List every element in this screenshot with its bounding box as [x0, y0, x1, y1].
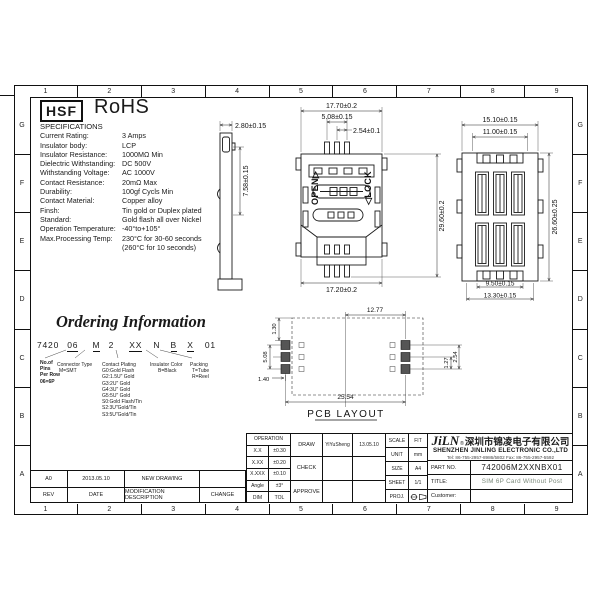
- side-view-dims: 2.80±0.15 7.58±0.15: [220, 121, 266, 215]
- dim-pin-pitch: 2.54±0.1: [353, 128, 380, 135]
- grid-col: 9: [525, 504, 588, 515]
- grid-row: F: [573, 155, 588, 213]
- customer-row: Customer:: [428, 490, 573, 503]
- grid-row: F: [15, 155, 30, 213]
- grid-col: 7: [397, 504, 461, 515]
- grid-col: 6: [333, 86, 397, 97]
- signoff-row-approve: APPROVE: [291, 481, 385, 503]
- ordering-leaders: [45, 350, 192, 358]
- grid-col: 1: [14, 86, 78, 97]
- tolerance-table: OPERATION X.X±0.30 X.XX±0.20 X.XXX±0.10 …: [246, 433, 290, 503]
- grid-row: A: [15, 446, 30, 503]
- dim-bottom-width: 17.20±0.2: [326, 287, 357, 294]
- rear-view: [457, 153, 543, 281]
- top-view: [296, 142, 387, 277]
- grid-col: 4: [206, 86, 270, 97]
- dim-side-height: 7.58±0.15: [243, 165, 250, 196]
- grid-col: 6: [333, 504, 397, 515]
- company-block: JiLN®深圳市锦凌电子有限公司 SHENZHEN JINLING ELECTR…: [427, 433, 573, 503]
- grid-col: 8: [461, 504, 525, 515]
- signoff-table: DRAW YiYuSheng 13.05.10 CHECK APPROVE: [290, 433, 385, 503]
- dim-rear-slot-width: 9.50±0.15: [486, 281, 515, 288]
- grid-row: D: [15, 271, 30, 329]
- grid-row: A: [573, 446, 588, 503]
- grid-columns-top: 1 2 3 4 5 6 7 8 9: [14, 86, 588, 97]
- dim-pcb-pitch: 2.54: [453, 351, 459, 363]
- grid-col: 3: [142, 86, 206, 97]
- dim-pcb-total: 25.54: [337, 394, 354, 401]
- company-contact: Tel: 86-755-2957-8986/5802 Fax: 86-755-2…: [447, 455, 554, 460]
- grid-col: 7: [397, 86, 461, 97]
- drawing-title: SIM 6P Card Without Post: [471, 475, 573, 488]
- grid-rows-left: G F E D C B A: [15, 97, 30, 503]
- grid-rows-right: G F E D C B A: [573, 97, 588, 503]
- part-number: 742006M2XXNBX01: [471, 461, 573, 474]
- dim-pcb-half: 12.77: [367, 307, 384, 314]
- dim-top-width: 17.70±0.2: [326, 103, 357, 110]
- title-row: TITLE: SIM 6P Card Without Post: [428, 475, 573, 489]
- grid-col: 2: [78, 86, 142, 97]
- info-table: SCALEFIT UNITmm SIZEA4 SHEET1/1 PROJ.: [385, 433, 427, 503]
- part-no-row: PART NO. 742006M2XXNBX01: [428, 461, 573, 475]
- grid-row: C: [15, 330, 30, 388]
- dim-rear-inner-width: 11.00±0.15: [483, 129, 518, 136]
- company-logo: JiLN: [432, 434, 459, 448]
- grid-row: G: [573, 97, 588, 155]
- company-name-en: SHENZHEN JINLING ELECTRONIC CO.,LTD: [433, 448, 568, 455]
- drawing-views: 2.80±0.15 7.58±0.15: [30, 97, 573, 432]
- revision-table: A0 2013.05.10 NEW DRAWING REV DATE MODIF…: [30, 470, 246, 503]
- signoff-row-draw: DRAW YiYuSheng 13.05.10: [291, 434, 385, 457]
- grid-row: G: [15, 97, 30, 155]
- dim-pcb-pad-span: 5.08: [263, 351, 269, 362]
- third-angle-projection-icon: [409, 490, 427, 503]
- grid-col: 2: [78, 504, 142, 515]
- open-label: OPEN▷: [310, 170, 320, 205]
- grid-col: 5: [270, 86, 334, 97]
- dim-rear-width: 15.10±0.15: [483, 117, 518, 124]
- pcb-layout: [281, 312, 423, 407]
- company-header: JiLN®深圳市锦凌电子有限公司 SHENZHEN JINLING ELECTR…: [428, 434, 573, 461]
- tolerance-title-row: OPERATION: [247, 434, 290, 446]
- grid-columns-bottom: 1 2 3 4 5 6 7 8 9: [14, 504, 588, 515]
- side-view: [218, 133, 243, 290]
- grid-col: 1: [14, 504, 78, 515]
- title-block: A0 2013.05.10 NEW DRAWING REV DATE MODIF…: [30, 433, 573, 503]
- dim-pcb-pad-offset: 1.40: [258, 377, 269, 383]
- grid-row: B: [573, 388, 588, 446]
- grid-row: E: [15, 213, 30, 271]
- grid-col: 9: [525, 86, 588, 97]
- dim-pin-span: 5.08±0.15: [321, 114, 352, 121]
- grid-col: 5: [270, 504, 334, 515]
- rear-view-dims: 15.10±0.15 11.00±0.15 26.60±0.25 9.50±0.…: [462, 117, 559, 301]
- revision-header: REV DATE MODIFICATION DESCRIPTION CHANGE: [30, 488, 245, 504]
- dim-body-height: 29.60±0.2: [439, 200, 446, 231]
- lock-label: ◁LOCK: [363, 171, 373, 206]
- dim-pcb-half-pitch: 1.27: [444, 357, 450, 368]
- signoff-row-check: CHECK: [291, 457, 385, 480]
- grid-col: 3: [142, 504, 206, 515]
- revision-entry: A0 2013.05.10 NEW DRAWING: [30, 471, 245, 488]
- grid-row: C: [573, 330, 588, 388]
- drawing-sheet: 1 2 3 4 5 6 7 8 9 1 2 3 4 5 6 7 8 9 G F …: [0, 0, 600, 600]
- dim-side-width: 2.80±0.15: [235, 123, 266, 130]
- edge-center-mark: [0, 95, 14, 96]
- grid-col: 8: [461, 86, 525, 97]
- pcb-layout-label: PCB LAYOUT: [307, 409, 385, 420]
- dim-rear-height: 26.60±0.25: [552, 199, 559, 234]
- grid-row: B: [15, 388, 30, 446]
- grid-row: E: [573, 213, 588, 271]
- grid-row: D: [573, 271, 588, 329]
- dim-rear-bottom-width: 13.30±0.15: [484, 293, 517, 300]
- dim-pcb-top-offset: 1.30: [272, 323, 278, 334]
- grid-col: 4: [206, 504, 270, 515]
